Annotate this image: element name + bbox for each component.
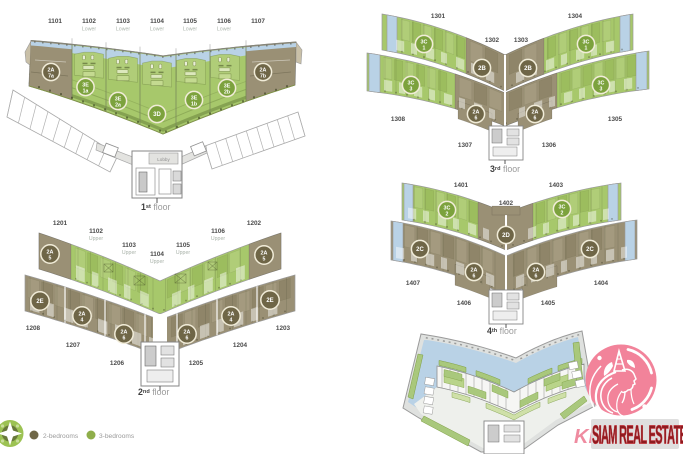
svg-text:3rd floor: 3rd floor	[490, 164, 520, 174]
svg-text:6: 6	[123, 335, 126, 341]
svg-text:2b: 2b	[224, 89, 230, 95]
svg-text:1201: 1201	[53, 220, 68, 227]
svg-text:1303: 1303	[514, 37, 529, 44]
svg-text:1403: 1403	[549, 182, 564, 189]
svg-text:1301: 1301	[431, 13, 446, 20]
svg-text:Upper: Upper	[150, 259, 164, 265]
svg-text:7b: 7b	[260, 73, 266, 79]
svg-text:1b: 1b	[191, 101, 197, 107]
svg-text:Upper: Upper	[122, 250, 136, 256]
svg-text:Lower: Lower	[217, 27, 231, 33]
svg-text:Upper: Upper	[89, 236, 103, 242]
svg-text:1107: 1107	[251, 18, 265, 25]
svg-text:3-bedrooms: 3-bedrooms	[99, 433, 135, 440]
svg-text:2D: 2D	[502, 233, 510, 239]
svg-text:Upper: Upper	[176, 250, 190, 256]
svg-text:4: 4	[81, 317, 84, 323]
svg-text:3: 3	[410, 86, 413, 92]
svg-text:6: 6	[475, 115, 478, 121]
svg-text:Lower: Lower	[116, 27, 130, 33]
svg-text:Lower: Lower	[82, 27, 96, 33]
svg-text:1101: 1101	[48, 18, 62, 25]
svg-text:1102: 1102	[82, 18, 96, 25]
svg-text:1: 1	[423, 45, 426, 51]
svg-text:3D: 3D	[153, 112, 161, 118]
svg-text:1404: 1404	[594, 280, 609, 287]
svg-text:1207: 1207	[66, 342, 81, 349]
svg-text:2: 2	[561, 210, 564, 216]
svg-text:1401: 1401	[454, 182, 469, 189]
svg-text:3: 3	[600, 86, 603, 92]
svg-text:1304: 1304	[568, 13, 583, 20]
svg-text:1308: 1308	[391, 116, 406, 123]
svg-text:1104: 1104	[150, 18, 164, 25]
svg-text:2C: 2C	[416, 247, 424, 253]
svg-text:2-bedrooms: 2-bedrooms	[43, 433, 79, 440]
svg-text:1208: 1208	[26, 325, 41, 332]
svg-text:1st floor: 1st floor	[141, 202, 171, 212]
svg-text:4th floor: 4th floor	[487, 326, 517, 336]
svg-text:1105: 1105	[176, 242, 190, 249]
svg-text:1405: 1405	[541, 300, 556, 307]
svg-text:1407: 1407	[406, 280, 421, 287]
svg-text:1203: 1203	[276, 325, 291, 332]
svg-text:5: 5	[49, 255, 52, 261]
svg-text:1305: 1305	[608, 116, 623, 123]
svg-text:1106: 1106	[217, 18, 231, 25]
svg-text:1402: 1402	[499, 200, 514, 207]
svg-text:1204: 1204	[233, 342, 248, 349]
svg-text:2nd floor: 2nd floor	[138, 387, 169, 397]
svg-text:1206: 1206	[110, 360, 125, 367]
svg-text:Lobby: Lobby	[157, 157, 170, 162]
svg-text:1406: 1406	[457, 300, 472, 307]
svg-text:1102: 1102	[89, 228, 103, 235]
svg-text:Lower: Lower	[150, 27, 164, 33]
svg-text:5: 5	[263, 256, 266, 262]
svg-text:1105: 1105	[183, 18, 197, 25]
svg-text:2a: 2a	[115, 102, 121, 108]
svg-text:1104: 1104	[150, 251, 164, 258]
svg-text:6: 6	[473, 273, 476, 279]
svg-text:2E: 2E	[36, 299, 43, 305]
svg-text:Upper: Upper	[211, 236, 225, 242]
svg-text:1103: 1103	[116, 18, 130, 25]
svg-text:1307: 1307	[458, 142, 473, 149]
svg-text:2: 2	[446, 211, 449, 217]
svg-text:1202: 1202	[247, 220, 262, 227]
svg-text:2E: 2E	[266, 298, 273, 304]
svg-text:6: 6	[534, 115, 537, 121]
svg-text:1205: 1205	[189, 360, 204, 367]
svg-text:SIAM REAL ESTATE: SIAM REAL ESTATE	[592, 421, 683, 450]
svg-text:1306: 1306	[542, 142, 557, 149]
svg-text:2B: 2B	[478, 66, 486, 72]
svg-text:1a: 1a	[83, 88, 89, 94]
svg-text:1106: 1106	[211, 228, 225, 235]
svg-text:2B: 2B	[524, 66, 532, 72]
svg-text:6: 6	[186, 335, 189, 341]
svg-text:1302: 1302	[485, 37, 500, 44]
svg-text:2C: 2C	[586, 247, 594, 253]
svg-text:1103: 1103	[122, 242, 136, 249]
svg-text:6: 6	[535, 273, 538, 279]
svg-text:7a: 7a	[48, 73, 54, 79]
svg-text:4: 4	[230, 317, 233, 323]
svg-text:1: 1	[585, 45, 588, 51]
svg-text:Lower: Lower	[183, 27, 197, 33]
